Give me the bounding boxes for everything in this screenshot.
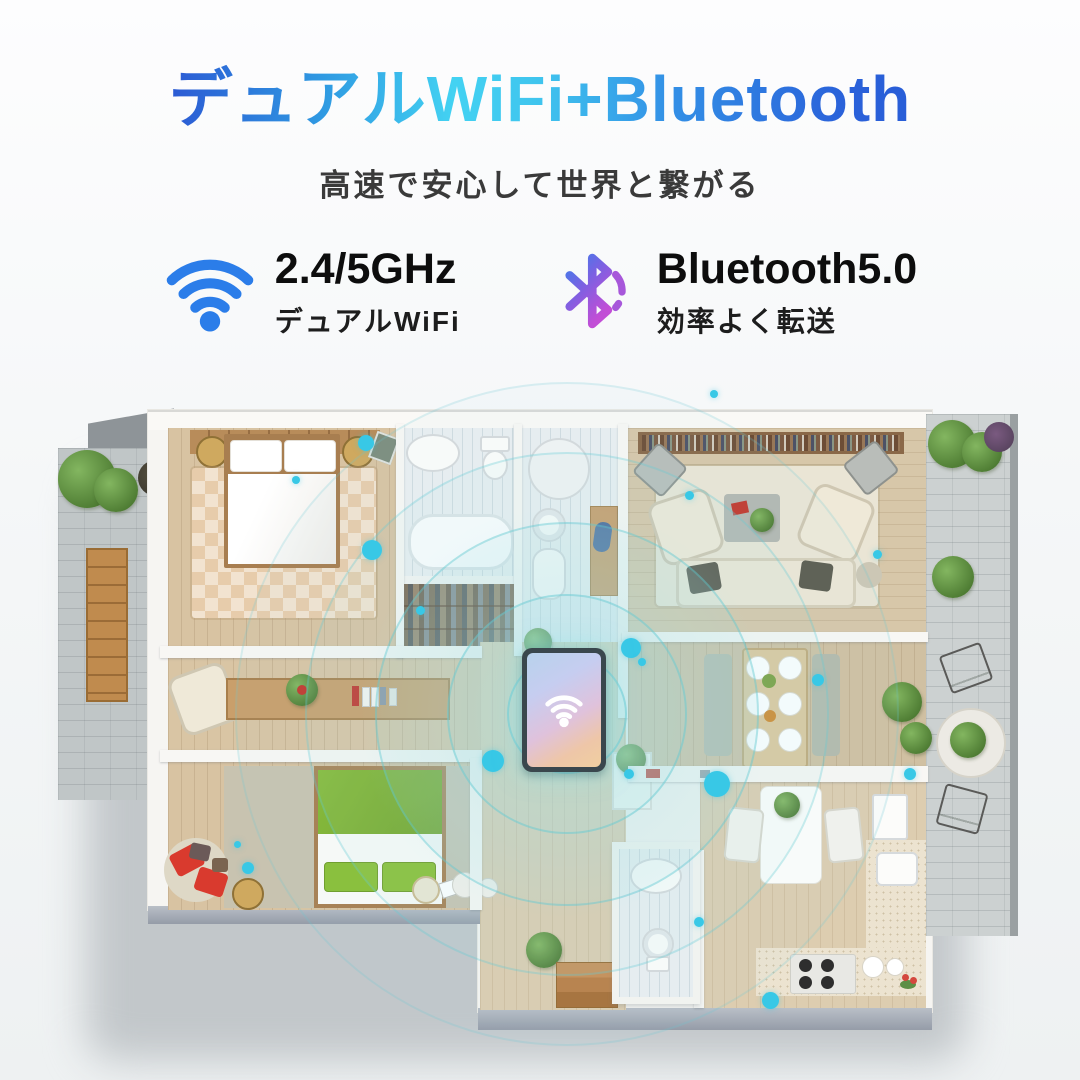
bed-pillow (284, 440, 336, 472)
wall (470, 758, 482, 910)
page-subtitle: 高速で安心して世界と繋がる (0, 160, 1080, 205)
flower (902, 974, 909, 981)
shower-base (528, 438, 590, 500)
burner (799, 976, 812, 989)
burner (821, 976, 834, 989)
table-plant (950, 722, 986, 758)
sofa-cushion (798, 560, 834, 592)
food-dish (764, 710, 776, 722)
wooden-bench (86, 548, 128, 702)
balcony-plant (94, 468, 138, 512)
desk-book (380, 687, 386, 705)
toilet-sink (630, 858, 682, 894)
stove (790, 954, 856, 994)
bluetooth-icon (549, 245, 639, 342)
kitchen-chair (723, 806, 764, 863)
base-edge (478, 1008, 932, 1030)
sofa-cushion (686, 561, 722, 594)
dining-plant (900, 722, 932, 754)
wall (514, 424, 522, 656)
feature-bluetooth-text: Bluetooth5.0 効率よく転送 (657, 247, 917, 340)
desk-book (352, 686, 359, 706)
food-dish (762, 674, 776, 688)
page-title: デュアルWiFi+Bluetooth (0, 48, 1080, 140)
dining-plant (882, 682, 922, 722)
signal-dot (710, 390, 718, 398)
wall (396, 424, 404, 658)
plate (746, 728, 770, 752)
bathtub (408, 514, 514, 570)
flower-pot (984, 422, 1014, 452)
bidet (532, 548, 566, 600)
toilet-tank (646, 956, 670, 972)
green-pillow (324, 862, 378, 892)
kitchen-chair (823, 806, 864, 863)
feature-wifi-text: 2.4/5GHz デュアルWiFi (275, 247, 461, 340)
pouf (856, 562, 882, 588)
ad-page: デュアルWiFi+Bluetooth 高速で安心して世界と繋がる 2.4/5GH… (0, 0, 1080, 1080)
tablet-screen (527, 653, 601, 767)
toilet (482, 450, 508, 480)
plate (778, 728, 802, 752)
sideboard (628, 766, 928, 782)
wreath-berry (297, 685, 307, 695)
console-desk (226, 678, 450, 720)
plate (778, 656, 802, 680)
bluetooth-heading: Bluetooth5.0 (657, 247, 917, 292)
table-lamp (412, 876, 440, 904)
wall (160, 750, 482, 762)
wifi-icon (163, 244, 257, 343)
desk-book (371, 687, 379, 707)
desk-book (389, 688, 397, 706)
wall (618, 424, 628, 644)
green-duvet (318, 770, 442, 834)
dining-bench (812, 654, 840, 756)
feature-bluetooth: Bluetooth5.0 効率よく転送 (549, 244, 917, 343)
burner (799, 959, 812, 972)
feature-row: 2.4/5GHz デュアルWiFi Bluetooth5.0 効率よく (0, 244, 1080, 343)
dining-bench (704, 654, 732, 756)
burner (821, 959, 834, 972)
sideboard-item (700, 770, 710, 778)
floorplan-illustration (0, 388, 1080, 1080)
kitchen-sink (876, 852, 918, 886)
entry-steps (556, 962, 618, 1008)
washing-machine (532, 508, 566, 542)
kitchen-plate (862, 956, 884, 978)
bathroom-sink (406, 434, 460, 472)
plate (778, 692, 802, 716)
tablet-wifi-icon (541, 685, 587, 736)
wifi-caption: デュアルWiFi (275, 300, 461, 340)
table-plant (774, 792, 800, 818)
dark-cushion (212, 858, 228, 872)
wifi-heading: 2.4/5GHz (275, 247, 461, 292)
wall (160, 646, 482, 658)
flower (910, 977, 917, 984)
desk-book (362, 687, 370, 707)
bluetooth-caption: 効率よく転送 (657, 300, 917, 340)
wall (618, 642, 628, 718)
fridge (872, 794, 908, 840)
tablet-device (522, 648, 606, 772)
balcony-rail (1010, 414, 1018, 936)
potted-plant (932, 556, 974, 598)
roof-band (148, 410, 932, 430)
bed-pillow (230, 440, 282, 472)
sideboard-item (646, 769, 660, 778)
kitchen-plate (886, 958, 904, 976)
table-plant (750, 508, 774, 532)
wall (622, 632, 928, 642)
feature-wifi: 2.4/5GHz デュアルWiFi (163, 244, 461, 343)
stool (232, 878, 264, 910)
bed-duvet (228, 474, 336, 564)
